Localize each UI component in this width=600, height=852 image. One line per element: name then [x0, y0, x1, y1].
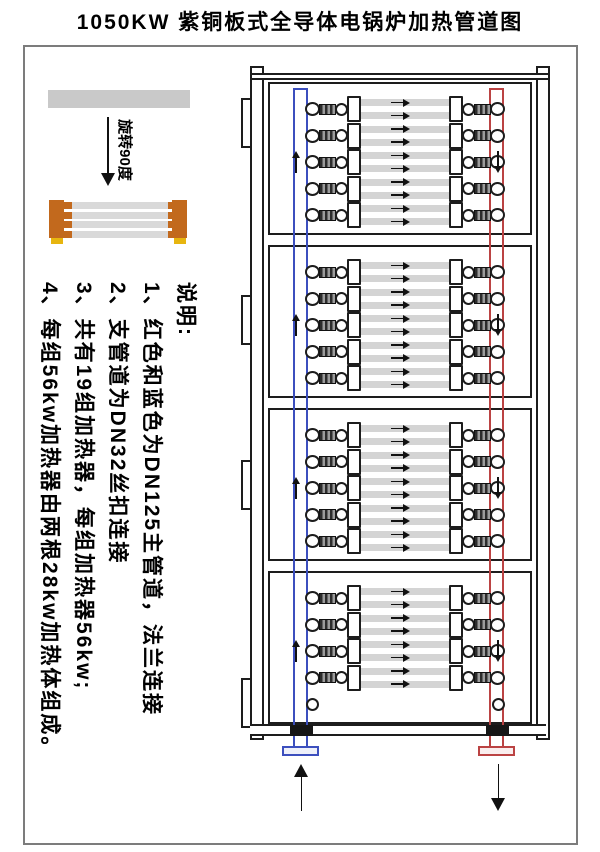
heater-header [449, 123, 463, 149]
pipe-flow-arrow-down [494, 151, 503, 173]
heater-header [449, 312, 463, 338]
legend-plate [48, 90, 190, 108]
rotate-arrow-head-icon [101, 173, 115, 186]
heater-header [449, 259, 463, 285]
tube-flow-arrow [391, 191, 410, 199]
heater-cap [490, 182, 505, 196]
heater-union [319, 646, 336, 657]
spare-stub-right [492, 698, 505, 711]
heater-header [347, 149, 361, 175]
heater-header [347, 96, 361, 122]
tube-flow-arrow [391, 680, 410, 688]
heater-header [347, 638, 361, 664]
pipe-flow-arrow-down [494, 477, 503, 499]
demo-heater-block-left [49, 200, 64, 238]
demo-heater-tube [72, 231, 172, 238]
inlet-arrow-up [294, 764, 309, 811]
tube-flow-arrow [391, 464, 410, 472]
demo-heater-tab [64, 231, 72, 238]
tube-flow-arrow [391, 301, 410, 309]
tube-flow-arrow [391, 288, 410, 296]
tube-flow-arrow [391, 275, 410, 283]
tube-flow-arrow [391, 641, 410, 649]
tube-flow-arrow [391, 112, 410, 120]
heater-cap [305, 618, 320, 632]
heater-cap [490, 129, 505, 143]
heater-row [305, 311, 505, 339]
drawing-title: 1050KW 紫铜板式全导体电锅炉加热管道图 [0, 6, 600, 36]
heater-union [319, 183, 336, 194]
heater-union [474, 536, 491, 547]
heater-cap [490, 534, 505, 548]
tube-flow-arrow [391, 368, 410, 376]
heater-union [319, 157, 336, 168]
heater-header [449, 96, 463, 122]
heater-union [319, 593, 336, 604]
heater-header [449, 202, 463, 228]
heater-union [319, 430, 336, 441]
tube-flow-arrow [391, 438, 410, 446]
tube-flow-arrow [391, 178, 410, 186]
heater-union [319, 346, 336, 357]
heater-header [449, 585, 463, 611]
heater-header [449, 422, 463, 448]
demo-heater-tube [72, 202, 172, 209]
tube-flow-arrow [391, 262, 410, 270]
tube-flow-arrow [391, 354, 410, 362]
rotate-arrow [107, 117, 109, 175]
heater-row [305, 448, 505, 476]
heater-cap [490, 102, 505, 116]
heater-row [305, 364, 505, 392]
tube-flow-arrow [391, 152, 410, 160]
demo-heater-tab [168, 221, 176, 228]
heater-header [347, 365, 361, 391]
tube-flow-arrow [391, 531, 410, 539]
drawing-canvas: 1050KW 紫铜板式全导体电锅炉加热管道图 旋转90度 说明: 1、红色和蓝色… [0, 0, 600, 852]
cabinet-right-post [536, 66, 550, 740]
tube-flow-arrow [391, 627, 410, 635]
flange-band-red [486, 725, 509, 736]
heater-cap [305, 591, 320, 605]
heater-header [449, 286, 463, 312]
pipe-flow-arrow-down [494, 314, 503, 336]
tube-flow-arrow [391, 218, 410, 226]
demo-heater-tube [72, 221, 172, 228]
heater-union [319, 672, 336, 683]
heater-cap [490, 265, 505, 279]
tube-flow-arrow [391, 125, 410, 133]
heater-union [319, 456, 336, 467]
tube-flow-arrow [391, 328, 410, 336]
heater-header [449, 612, 463, 638]
heater-header [449, 449, 463, 475]
tube-flow-arrow [391, 614, 410, 622]
heater-row [305, 474, 505, 502]
tube-flow-arrow [391, 425, 410, 433]
heater-union [319, 619, 336, 630]
outlet-arrow-down [491, 764, 506, 811]
heater-row [305, 175, 505, 203]
heater-union [319, 320, 336, 331]
heater-header [449, 502, 463, 528]
heater-cap [305, 644, 320, 658]
tube-flow-arrow [391, 491, 410, 499]
heater-header [347, 286, 361, 312]
heater-union [474, 320, 491, 331]
heater-cap [305, 182, 320, 196]
heater-cap [305, 534, 320, 548]
tube-flow-arrow [391, 667, 410, 675]
heater-header [449, 638, 463, 664]
heater-header [449, 365, 463, 391]
heater-union [474, 157, 491, 168]
heater-union [319, 210, 336, 221]
heater-cap [305, 428, 320, 442]
heater-union [474, 130, 491, 141]
heater-cap [490, 591, 505, 605]
heater-cap [305, 129, 320, 143]
demo-heater-foot [174, 238, 186, 244]
heater-union [474, 210, 491, 221]
note-item-1: 1、红色和蓝色为DN125主管道，法兰连接 [134, 282, 168, 852]
heater-union [474, 646, 491, 657]
cabinet-top-beam [250, 73, 550, 80]
demo-heater-tube [72, 212, 172, 219]
heater-cap [305, 481, 320, 495]
heater-row [305, 148, 505, 176]
heater-header [347, 612, 361, 638]
heater-union [474, 430, 491, 441]
heater-union [474, 267, 491, 278]
heater-cap [305, 208, 320, 222]
heater-row [305, 611, 505, 639]
heater-header [347, 502, 361, 528]
heater-header [347, 312, 361, 338]
heater-header [347, 202, 361, 228]
heater-cap [305, 292, 320, 306]
tube-flow-arrow [391, 381, 410, 389]
tube-flow-arrow [391, 165, 410, 173]
notes-heading: 说明: [168, 282, 202, 852]
heater-header [449, 339, 463, 365]
heater-union [319, 509, 336, 520]
heater-row [305, 637, 505, 665]
demo-heater-tab [168, 202, 176, 209]
heater-cap [305, 508, 320, 522]
heater-union [319, 293, 336, 304]
heater-union [319, 267, 336, 278]
tube-flow-arrow [391, 478, 410, 486]
heater-cap [490, 292, 505, 306]
demo-heater-tab [64, 202, 72, 209]
demo-heater-foot [51, 238, 63, 244]
heater-cap [490, 428, 505, 442]
heater-union [474, 509, 491, 520]
heater-union [474, 373, 491, 384]
heater-row [305, 338, 505, 366]
heater-union [474, 293, 491, 304]
heater-header [347, 449, 361, 475]
heater-header [449, 176, 463, 202]
demo-heater-tab [168, 212, 176, 219]
heater-header [347, 665, 361, 691]
heater-cap [490, 671, 505, 685]
heater-header [347, 475, 361, 501]
heater-cap [305, 102, 320, 116]
heater-cap [305, 371, 320, 385]
pipe-flow-arrow-up [292, 477, 301, 499]
notes-block: 说明: 1、红色和蓝色为DN125主管道，法兰连接 2、支管道为DN32丝扣连接… [32, 282, 202, 852]
tube-flow-arrow [391, 504, 410, 512]
heater-union [319, 373, 336, 384]
heater-row [305, 421, 505, 449]
heater-row [305, 527, 505, 555]
heater-row [305, 584, 505, 612]
heater-cap [305, 318, 320, 332]
note-item-2: 2、支管道为DN32丝扣连接 [100, 282, 134, 852]
heater-union [319, 483, 336, 494]
heater-cap [490, 618, 505, 632]
heater-header [449, 528, 463, 554]
heater-row [305, 122, 505, 150]
tube-flow-arrow [391, 588, 410, 596]
heater-union [319, 536, 336, 547]
heater-header [347, 528, 361, 554]
spare-stub-left [306, 698, 319, 711]
heater-cap [305, 345, 320, 359]
heater-row [305, 201, 505, 229]
tube-flow-arrow [391, 451, 410, 459]
heater-header [449, 149, 463, 175]
heater-header [347, 176, 361, 202]
heater-row [305, 95, 505, 123]
heater-header [347, 123, 361, 149]
cabinet-left-post [250, 66, 264, 740]
rotate-label: 旋转90度 [118, 111, 136, 189]
heater-union [474, 672, 491, 683]
heater-cap [490, 455, 505, 469]
heater-union [474, 183, 491, 194]
pipe-flow-arrow-down [494, 640, 503, 662]
tube-flow-arrow [391, 99, 410, 107]
heater-row [305, 258, 505, 286]
pipe-flange-red [478, 746, 515, 756]
heater-union [474, 483, 491, 494]
pipe-flow-arrow-up [292, 314, 301, 336]
heater-header [449, 665, 463, 691]
heater-cap [305, 265, 320, 279]
heater-union [474, 593, 491, 604]
heater-cap [490, 208, 505, 222]
heater-row [305, 664, 505, 692]
tube-flow-arrow [391, 601, 410, 609]
tube-flow-arrow [391, 138, 410, 146]
heater-row [305, 501, 505, 529]
tube-flow-arrow [391, 341, 410, 349]
heater-header [347, 339, 361, 365]
demo-heater-tab [64, 212, 72, 219]
heater-cap [305, 155, 320, 169]
pipe-flange-blue [282, 746, 319, 756]
heater-union [474, 346, 491, 357]
tube-flow-arrow [391, 315, 410, 323]
heater-cap [490, 508, 505, 522]
heater-header [347, 259, 361, 285]
tube-flow-arrow [391, 517, 410, 525]
heater-union [319, 130, 336, 141]
pipe-flow-arrow-up [292, 640, 301, 662]
demo-heater-tab [64, 221, 72, 228]
heater-cap [490, 371, 505, 385]
heater-union [474, 619, 491, 630]
heater-union [474, 456, 491, 467]
demo-heater-tab [168, 231, 176, 238]
heater-row [305, 285, 505, 313]
pipe-flow-arrow-up [292, 151, 301, 173]
note-item-4: 4、每组56kw加热器由两根28kw加热体组成。 [32, 282, 66, 852]
tube-flow-arrow [391, 205, 410, 213]
note-item-3: 3、共有19组加热器，每组加热器56kw; [66, 282, 100, 852]
heater-header [347, 422, 361, 448]
heater-header [347, 585, 361, 611]
flange-band-blue [290, 725, 313, 736]
heater-union [474, 104, 491, 115]
heater-cap [305, 455, 320, 469]
tube-flow-arrow [391, 654, 410, 662]
tube-flow-arrow [391, 544, 410, 552]
heater-cap [490, 345, 505, 359]
heater-cap [305, 671, 320, 685]
heater-header [449, 475, 463, 501]
heater-union [319, 104, 336, 115]
